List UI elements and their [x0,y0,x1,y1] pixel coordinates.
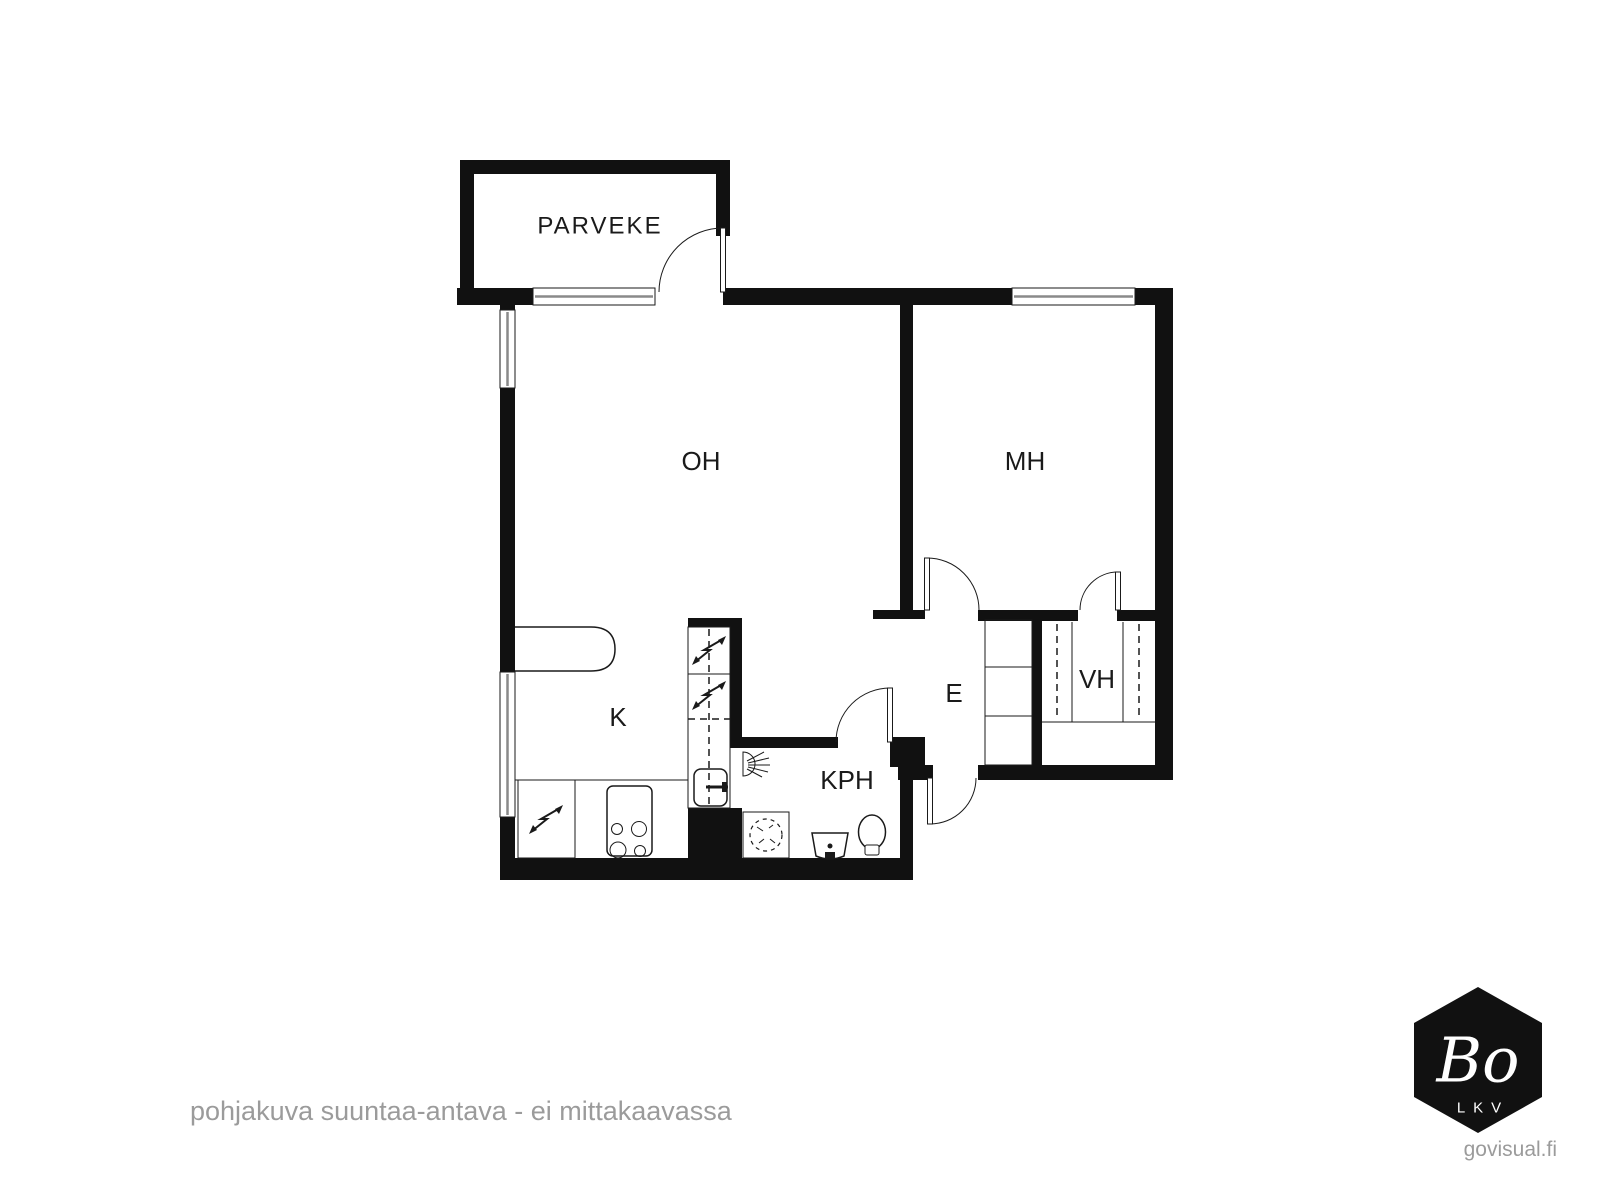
washing-machine-icon [743,812,789,858]
bathroom-sink-icon [812,833,848,859]
living-room-window [500,310,515,388]
balcony-door [659,228,726,292]
hall-cabinet [985,620,1032,765]
walls [457,160,1173,880]
bathroom-door [836,688,893,742]
front-door [928,778,977,824]
kitchen-window [500,672,515,817]
kitchen-counter [515,627,615,671]
room-label-parveke: PARVEKE [537,213,662,240]
site-credit-text: govisual.fi [1464,1138,1557,1162]
floorplan-page: PARVEKE OH MH K KPH E VH Bo LKV pohjakuv… [0,0,1600,1200]
room-label-kph: KPH [820,765,873,795]
storage-fixtures [985,620,1155,765]
stove-icon [607,786,652,858]
room-label-mh: MH [1005,446,1045,476]
bedroom-door [925,558,980,610]
kitchen-sink-icon [694,769,728,806]
closet-door [1080,572,1121,610]
room-label-vh: VH [1079,664,1115,694]
room-label-k: K [609,702,627,732]
brand-logo: Bo LKV [1414,987,1542,1133]
room-label-e: E [945,678,962,708]
dishwasher-icon [529,805,563,834]
logo-brand-text: Bo [1436,1024,1520,1097]
floorplan-drawing: PARVEKE OH MH K KPH E VH Bo LKV [0,0,1600,1200]
logo-sub-text: LKV [1457,1100,1509,1117]
room-label-oh: OH [682,446,721,476]
shower-icon [743,752,770,777]
refrigerator-icon [692,636,726,665]
disclaimer-text: pohjakuva suuntaa-antava - ei mittakaava… [190,1096,732,1127]
toilet-icon [859,815,886,855]
bedroom-window [1012,288,1135,305]
doors [659,228,1121,824]
balcony-window [533,288,655,305]
